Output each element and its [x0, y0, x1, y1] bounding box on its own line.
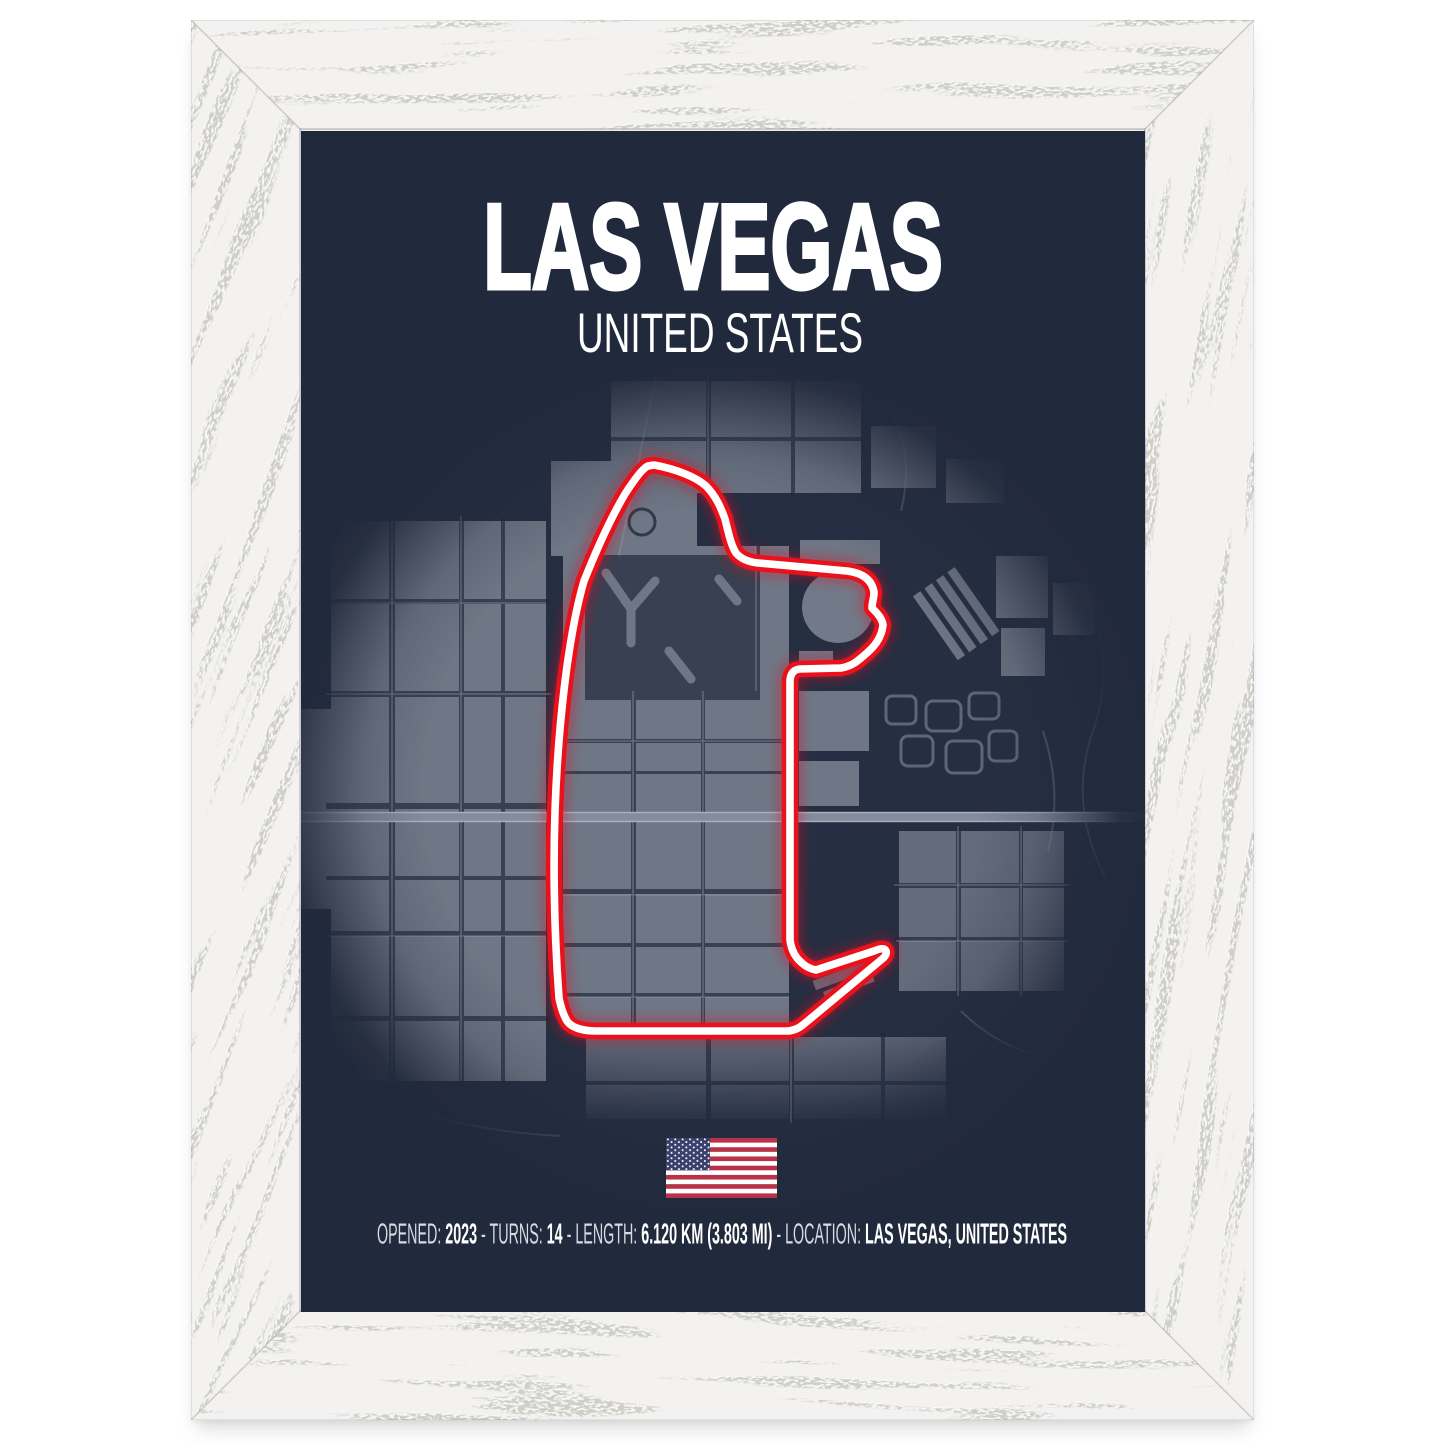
- svg-text:UNITED STATES: UNITED STATES: [577, 302, 863, 365]
- svg-text:LAS VEGAS: LAS VEGAS: [483, 178, 943, 314]
- svg-text:OPENED: 2023 - TURNS: 14 - LEN: OPENED: 2023 - TURNS: 14 - LENGTH: 6.120…: [377, 1217, 1067, 1250]
